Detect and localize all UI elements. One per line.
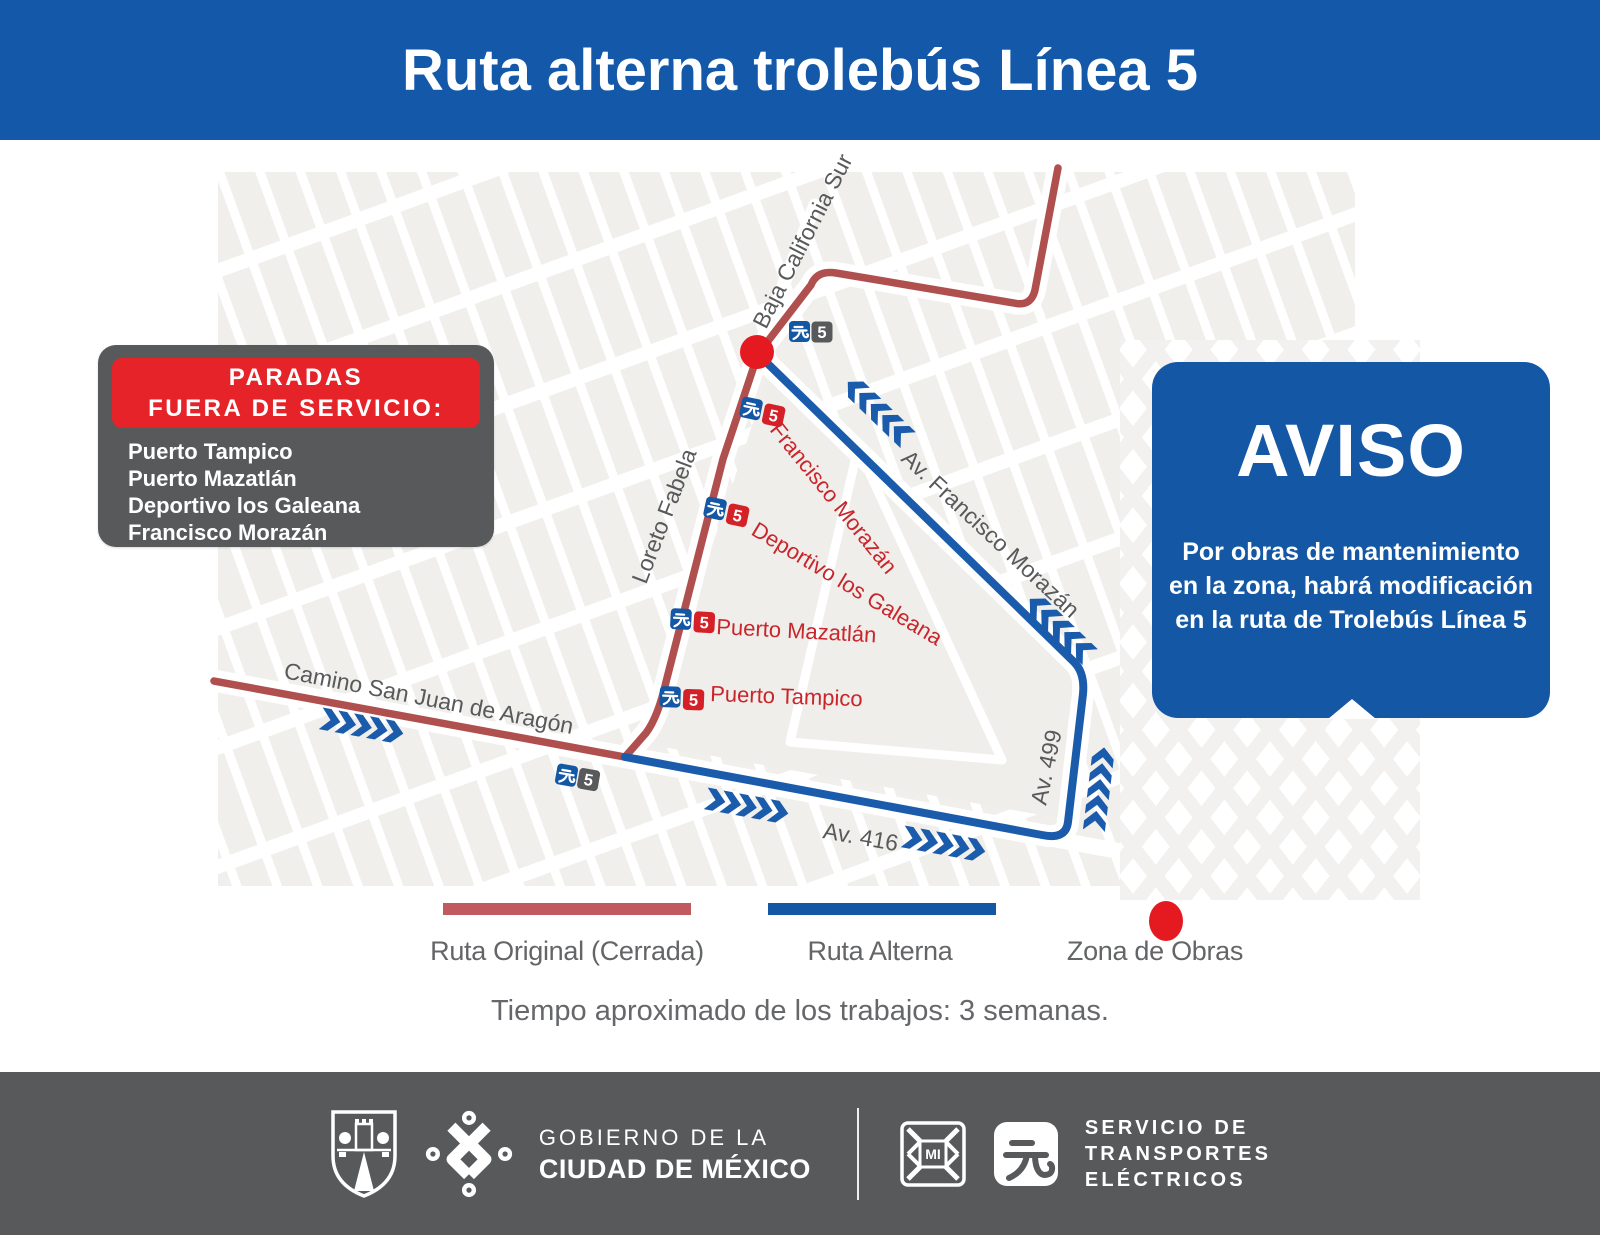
legend-label-works: Zona de Obras [1005, 936, 1305, 967]
legend-label-alternate: Ruta Alterna [730, 936, 1030, 967]
out-of-service-title-line2: FUERA DE SERVICIO: [148, 393, 444, 424]
legend-dot-works [1149, 901, 1183, 941]
cdmx-knot-icon [425, 1110, 513, 1198]
cdmx-shield-icon [329, 1108, 399, 1200]
list-item: Puerto Tampico [128, 438, 494, 465]
government-wordmark: GOBIERNO DE LA CIUDAD DE MÉXICO [539, 1123, 811, 1185]
out-of-service-panel: PARADAS FUERA DE SERVICIO: Puerto Tampic… [98, 345, 494, 547]
list-item: Deportivo los Galeana [128, 492, 494, 519]
legend-label-original: Ruta Original (Cerrada) [417, 936, 717, 967]
notice-body-line: en la ruta de Trolebús Línea 5 [1152, 603, 1550, 637]
legend-swatch-alternate [768, 903, 996, 915]
notice-panel: AVISO Por obras de mantenimiento en la z… [1152, 362, 1550, 718]
works-zone-dot [740, 335, 774, 369]
notice-body-line: en la zona, habrá modificación [1152, 569, 1550, 603]
legend-swatch-original [443, 903, 691, 915]
notice-body: Por obras de mantenimiento en la zona, h… [1152, 535, 1550, 637]
gov-line1: GOBIERNO DE LA [539, 1123, 811, 1153]
notice-title: AVISO [1152, 408, 1550, 493]
stop-label-tampico: Puerto Tampico [710, 681, 863, 711]
out-of-service-title-line1: PARADAS [229, 362, 363, 393]
duration-note: Tiempo aproximado de los trabajos: 3 sem… [0, 995, 1600, 1028]
svg-text:MI: MI [925, 1146, 941, 1162]
list-item: Francisco Morazán [128, 519, 494, 546]
aztec-pattern-icon: MI [899, 1120, 967, 1188]
agency-line2: TRANSPORTES [1085, 1141, 1271, 1167]
page-header: Ruta alterna trolebús Línea 5 [0, 0, 1600, 140]
list-item: Puerto Mazatlán [128, 465, 494, 492]
footer-divider [857, 1108, 859, 1200]
svg-text:5: 5 [699, 614, 709, 632]
page-footer: GOBIERNO DE LA CIUDAD DE MÉXICO MI [0, 1072, 1600, 1235]
notice-body-line: Por obras de mantenimiento [1152, 535, 1550, 569]
page-title: Ruta alterna trolebús Línea 5 [402, 37, 1198, 104]
agency-wordmark: SERVICIO DE TRANSPORTES ELÉCTRICOS [1085, 1115, 1271, 1193]
gov-line2: CIUDAD DE MÉXICO [539, 1153, 811, 1185]
agency-line3: ELÉCTRICOS [1085, 1167, 1271, 1193]
infographic-page: Ruta alterna trolebús Línea 5 [0, 0, 1600, 1235]
agency-line1: SERVICIO DE [1085, 1115, 1271, 1141]
out-of-service-header: PARADAS FUERA DE SERVICIO: [112, 358, 480, 428]
ste-logo-icon [993, 1121, 1059, 1187]
svg-text:5: 5 [817, 324, 826, 342]
svg-text:5: 5 [689, 692, 699, 710]
out-of-service-list: Puerto Tampico Puerto Mazatlán Deportivo… [98, 436, 494, 546]
